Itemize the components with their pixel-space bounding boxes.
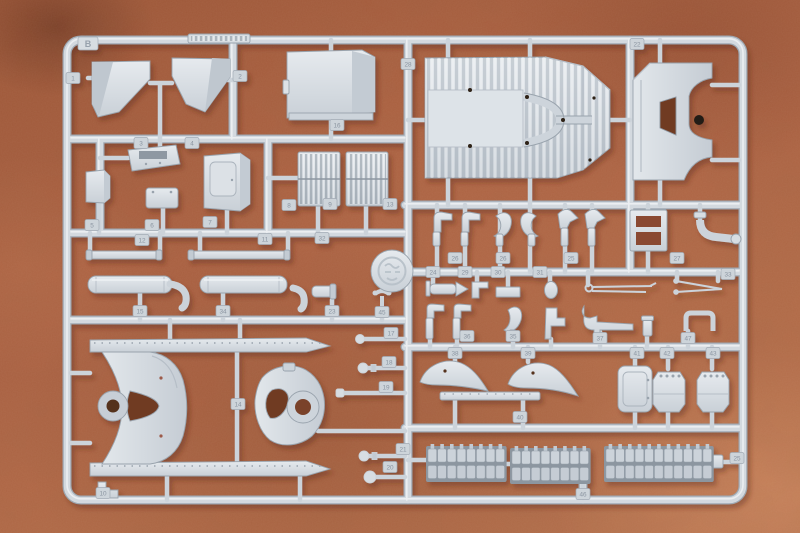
- track-link: [635, 466, 644, 479]
- track-link: [616, 466, 625, 479]
- part-number-label: 24: [429, 269, 437, 276]
- track-guide-horn: [440, 444, 444, 449]
- part-number-label: 2: [238, 73, 242, 80]
- part-number-label: 39: [524, 350, 532, 357]
- part-muffler-2: [200, 276, 287, 293]
- track-guide-horn: [479, 444, 483, 449]
- part-number-label: 35: [509, 333, 517, 340]
- part-number-label: 32: [318, 235, 326, 242]
- part-number-label: 10: [99, 490, 107, 497]
- molded-logo-medallion: [371, 250, 413, 292]
- track-guide-horn: [667, 444, 671, 449]
- part-number-label: 7: [208, 219, 212, 226]
- track-link: [674, 449, 683, 462]
- track-link: [486, 466, 495, 479]
- part-small-barrel: [312, 284, 336, 299]
- track-link: [438, 466, 447, 479]
- part-top-beam: [90, 338, 330, 352]
- track-link: [477, 466, 486, 479]
- part-number-label: 13: [386, 201, 394, 208]
- track-link: [684, 466, 693, 479]
- photo-of-sprue: 1228221634567891312113215342345141017181…: [0, 0, 800, 533]
- part-rect-frame: [630, 210, 667, 251]
- track-link: [580, 451, 589, 464]
- housing-hole: [295, 399, 311, 415]
- track-guide-horn: [450, 444, 454, 449]
- part-number-label: 30: [494, 269, 502, 276]
- part-number-label: 4: [190, 140, 194, 147]
- track-guide-horn: [524, 446, 528, 451]
- track-link: [655, 466, 664, 479]
- part-hatch: [618, 366, 652, 412]
- track-guide-horn: [553, 446, 557, 451]
- track-link: [551, 451, 560, 464]
- part-stowage-box: [283, 50, 375, 120]
- track-link: [522, 468, 531, 481]
- part-number-label: 31: [536, 269, 544, 276]
- track-link: [570, 451, 579, 464]
- track-link: [635, 449, 644, 462]
- bracket-hole: [694, 115, 704, 125]
- track-link: [541, 451, 550, 464]
- part-number-label: 47: [684, 335, 692, 342]
- track-link: [447, 466, 456, 479]
- molded-copyright-text: [191, 36, 247, 41]
- part-number-label: 15: [136, 308, 144, 315]
- part-number-label: 1: [71, 75, 75, 82]
- deck-center-panel: [428, 90, 523, 147]
- part-number-label: 8: [287, 202, 291, 209]
- part-transmission-housing-1: [653, 372, 685, 412]
- track-link: [561, 468, 570, 481]
- track-link: [428, 449, 437, 462]
- part-number-label: 43: [709, 350, 717, 357]
- track-link: [606, 449, 615, 462]
- track-link: [703, 449, 712, 462]
- track-link: [457, 466, 466, 479]
- sprue-letter: B: [85, 39, 92, 49]
- track-link: [645, 449, 654, 462]
- track-link: [551, 468, 560, 481]
- track-guide-horn: [677, 444, 681, 449]
- track-link: [616, 449, 625, 462]
- track-guide-horn: [618, 444, 622, 449]
- frame-hole: [107, 400, 120, 413]
- part-number-label: 23: [328, 308, 336, 315]
- track-guide-horn: [563, 446, 567, 451]
- part-grille-panel-1: [298, 152, 340, 206]
- track-link: [580, 468, 589, 481]
- part-number-label: 9: [328, 201, 332, 208]
- part-number-label: 21: [399, 446, 407, 453]
- part-number-label: 45: [378, 309, 386, 316]
- part-number-label: 14: [234, 401, 242, 408]
- part-number-label: 25: [567, 255, 575, 262]
- track-guide-horn: [583, 446, 587, 451]
- part-number-label: 28: [404, 61, 412, 68]
- track-guide-horn: [628, 444, 632, 449]
- track-guide-horn: [431, 444, 435, 449]
- part-number-label: 33: [724, 271, 732, 278]
- track-link: [486, 449, 495, 462]
- part-number-label: 12: [138, 237, 146, 244]
- part-number-label: 46: [579, 491, 587, 498]
- track-link: [541, 468, 550, 481]
- part-number-label: 11: [262, 236, 269, 243]
- part-number-label: 42: [663, 350, 671, 357]
- track-link: [606, 466, 615, 479]
- part-number-label: 36: [463, 333, 471, 340]
- track-guide-horn: [609, 444, 613, 449]
- part-number-label: 37: [596, 335, 604, 342]
- track-link: [625, 466, 634, 479]
- track-link: [467, 466, 476, 479]
- track-link: [664, 466, 673, 479]
- track-link: [645, 466, 654, 479]
- part-final-drive-frame: [98, 352, 187, 464]
- track-guide-horn: [638, 444, 642, 449]
- part-number-label: 16: [333, 122, 341, 129]
- part-muffler-1: [88, 276, 172, 293]
- bracket-cutout: [660, 97, 676, 135]
- part-number-label: 19: [382, 384, 390, 391]
- track-link: [496, 449, 505, 462]
- track-link: [438, 449, 447, 462]
- part-number-label: 29: [461, 269, 469, 276]
- part-grille-panel-2: [346, 152, 388, 206]
- track-link: [664, 449, 673, 462]
- part-number-label: 26: [451, 255, 459, 262]
- part-small-plate: [146, 188, 178, 208]
- part-number-label: 5: [90, 222, 94, 229]
- part-number-label: 41: [633, 350, 641, 357]
- track-link: [512, 468, 521, 481]
- track-link: [531, 451, 540, 464]
- track-guide-horn: [696, 444, 700, 449]
- track-guide-horn: [647, 444, 651, 449]
- part-hull-deck: [425, 57, 610, 178]
- track-guide-horn: [686, 444, 690, 449]
- part-thin-rod-1: [86, 250, 162, 260]
- track-link: [693, 466, 702, 479]
- part-tall-box: [86, 170, 110, 203]
- track-link: [693, 449, 702, 462]
- track-guide-horn: [706, 444, 710, 449]
- track-link: [447, 449, 456, 462]
- track-link: [703, 466, 712, 479]
- track-guide-horn: [534, 446, 538, 451]
- track-link: [457, 449, 466, 462]
- part-rivet-strip: [440, 392, 540, 400]
- part-number-label: 34: [219, 308, 227, 315]
- track-link: [522, 451, 531, 464]
- track-guide-horn: [544, 446, 548, 451]
- part-number-label: 17: [387, 330, 395, 337]
- part-transmission-housing-2: [697, 372, 729, 412]
- track-guide-horn: [515, 446, 519, 451]
- track-link: [531, 468, 540, 481]
- part-number-label: 20: [386, 464, 394, 471]
- part-number-label: 3: [139, 140, 143, 147]
- part-number-label: 22: [633, 41, 641, 48]
- part-number-label: 18: [385, 359, 393, 366]
- track-link: [625, 449, 634, 462]
- track-link: [674, 466, 683, 479]
- sprue-letter-tag: B: [78, 37, 98, 50]
- track-guide-horn: [489, 444, 493, 449]
- part-number-label: 38: [451, 350, 459, 357]
- part-number-label: 25: [733, 455, 741, 462]
- track-link: [477, 449, 486, 462]
- track-link: [467, 449, 476, 462]
- part-number-label: 27: [673, 255, 681, 262]
- sprue-scene: 1228221634567891312113215342345141017181…: [0, 0, 800, 533]
- track-link: [512, 451, 521, 464]
- track-guide-horn: [573, 446, 577, 451]
- part-cab-box: [204, 153, 250, 211]
- track-link: [496, 466, 505, 479]
- track-link: [684, 449, 693, 462]
- track-guide-horn: [499, 444, 503, 449]
- track-guide-horn: [460, 444, 464, 449]
- part-number-label: 6: [150, 222, 154, 229]
- track-link: [428, 466, 437, 479]
- part-thin-rod-2: [188, 250, 290, 260]
- track-guide-horn: [469, 444, 473, 449]
- track-guide-horn: [657, 444, 661, 449]
- part-number-label: 40: [516, 414, 524, 421]
- part-number-label: 26: [499, 255, 507, 262]
- part-track-runs: [426, 444, 714, 484]
- track-link: [655, 449, 664, 462]
- track-link: [561, 451, 570, 464]
- track-link: [570, 468, 579, 481]
